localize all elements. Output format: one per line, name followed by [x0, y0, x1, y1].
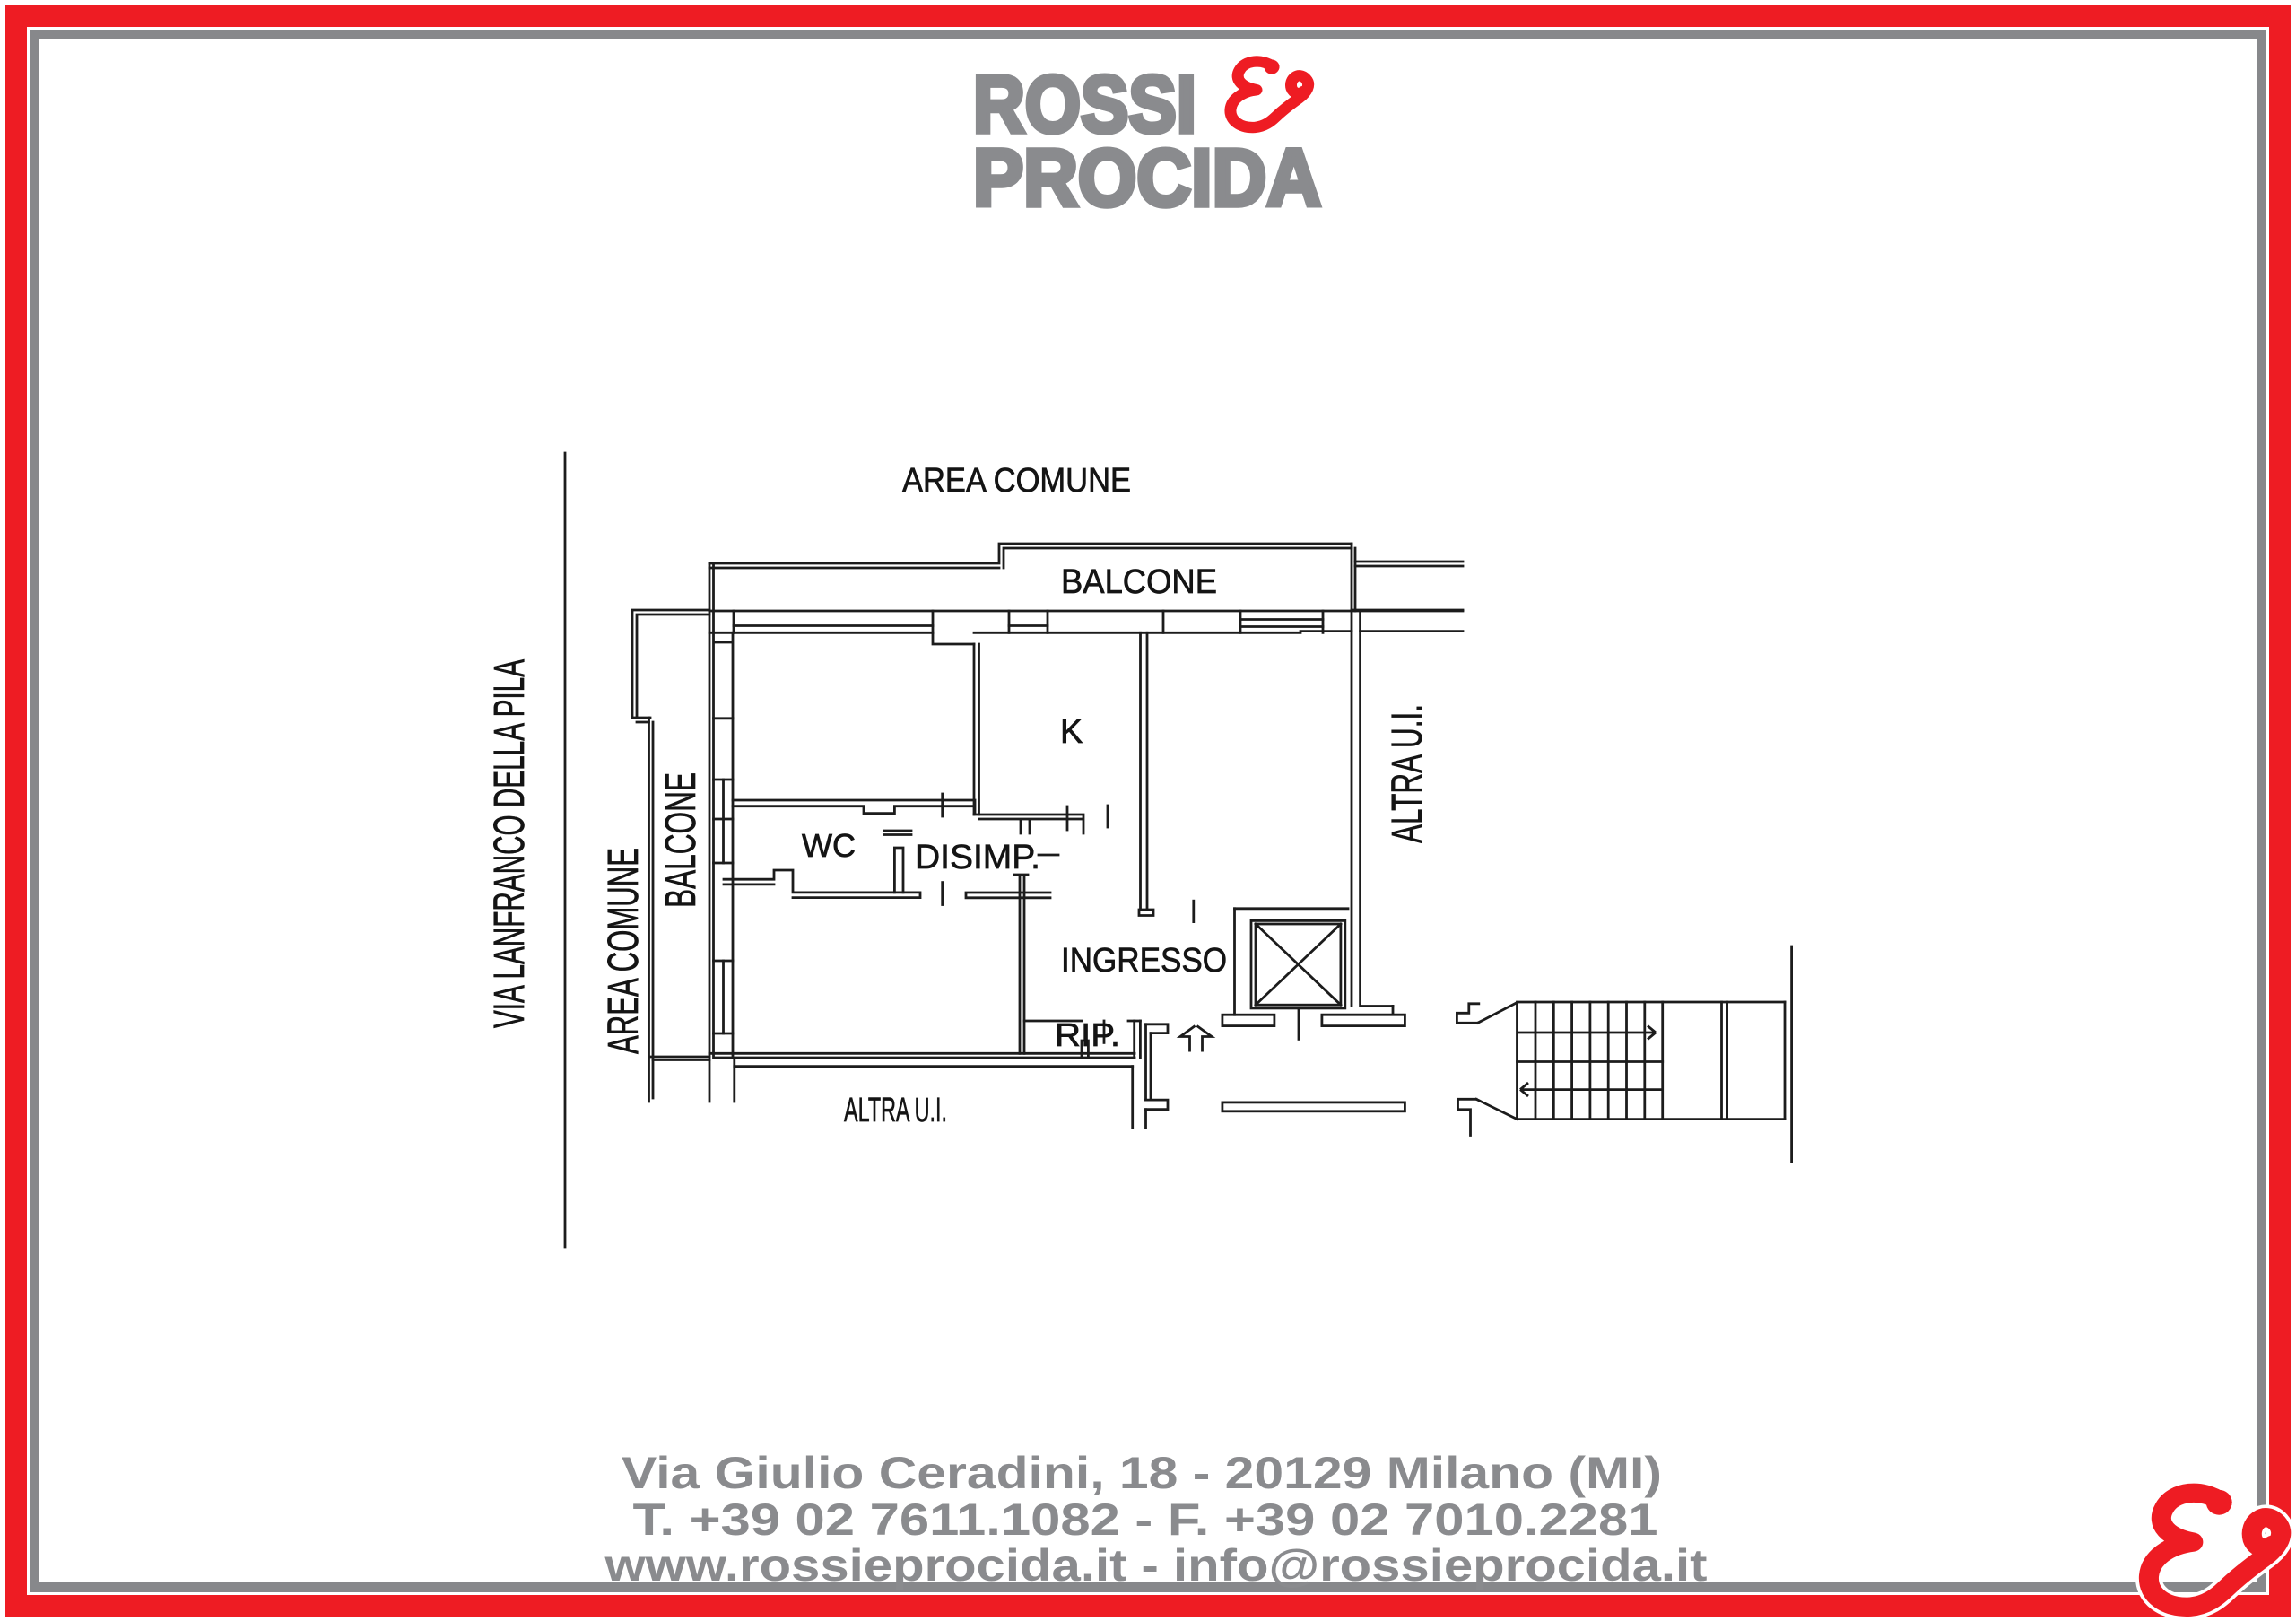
- svg-text:BALCONE: BALCONE: [1061, 563, 1217, 601]
- svg-text:DISIMP.: DISIMP.: [915, 839, 1040, 876]
- svg-text:AREA COMUNE: AREA COMUNE: [902, 462, 1131, 500]
- svg-text:AREA COMUNE: AREA COMUNE: [600, 848, 648, 1054]
- svg-text:ALTRA U.I.: ALTRA U.I.: [844, 1092, 947, 1129]
- svg-text:VIA LANFRANCO DELLA PILA: VIA LANFRANCO DELLA PILA: [486, 659, 534, 1028]
- svg-text:K: K: [1060, 713, 1083, 751]
- svg-text:Via Giulio Ceradini, 18 - 2012: Via Giulio Ceradini, 18 - 20129 Milano (…: [622, 1448, 1662, 1498]
- svg-text:ALTRA U.I.: ALTRA U.I.: [1384, 704, 1431, 843]
- svg-text:PROCIDA: PROCIDA: [973, 134, 1321, 223]
- svg-text:www.rossieprocida.it - info@ro: www.rossieprocida.it - info@rossieprocid…: [604, 1540, 1708, 1590]
- svg-text:RIP.: RIP.: [1055, 1016, 1120, 1053]
- svg-text:WC: WC: [802, 827, 856, 864]
- svg-text:INGRESSO: INGRESSO: [1061, 942, 1227, 980]
- svg-text:BALCONE: BALCONE: [657, 772, 705, 908]
- svg-text:T. +39 02 7611.1082 - F. +39 0: T. +39 02 7611.1082 - F. +39 02 7010.228…: [633, 1495, 1658, 1545]
